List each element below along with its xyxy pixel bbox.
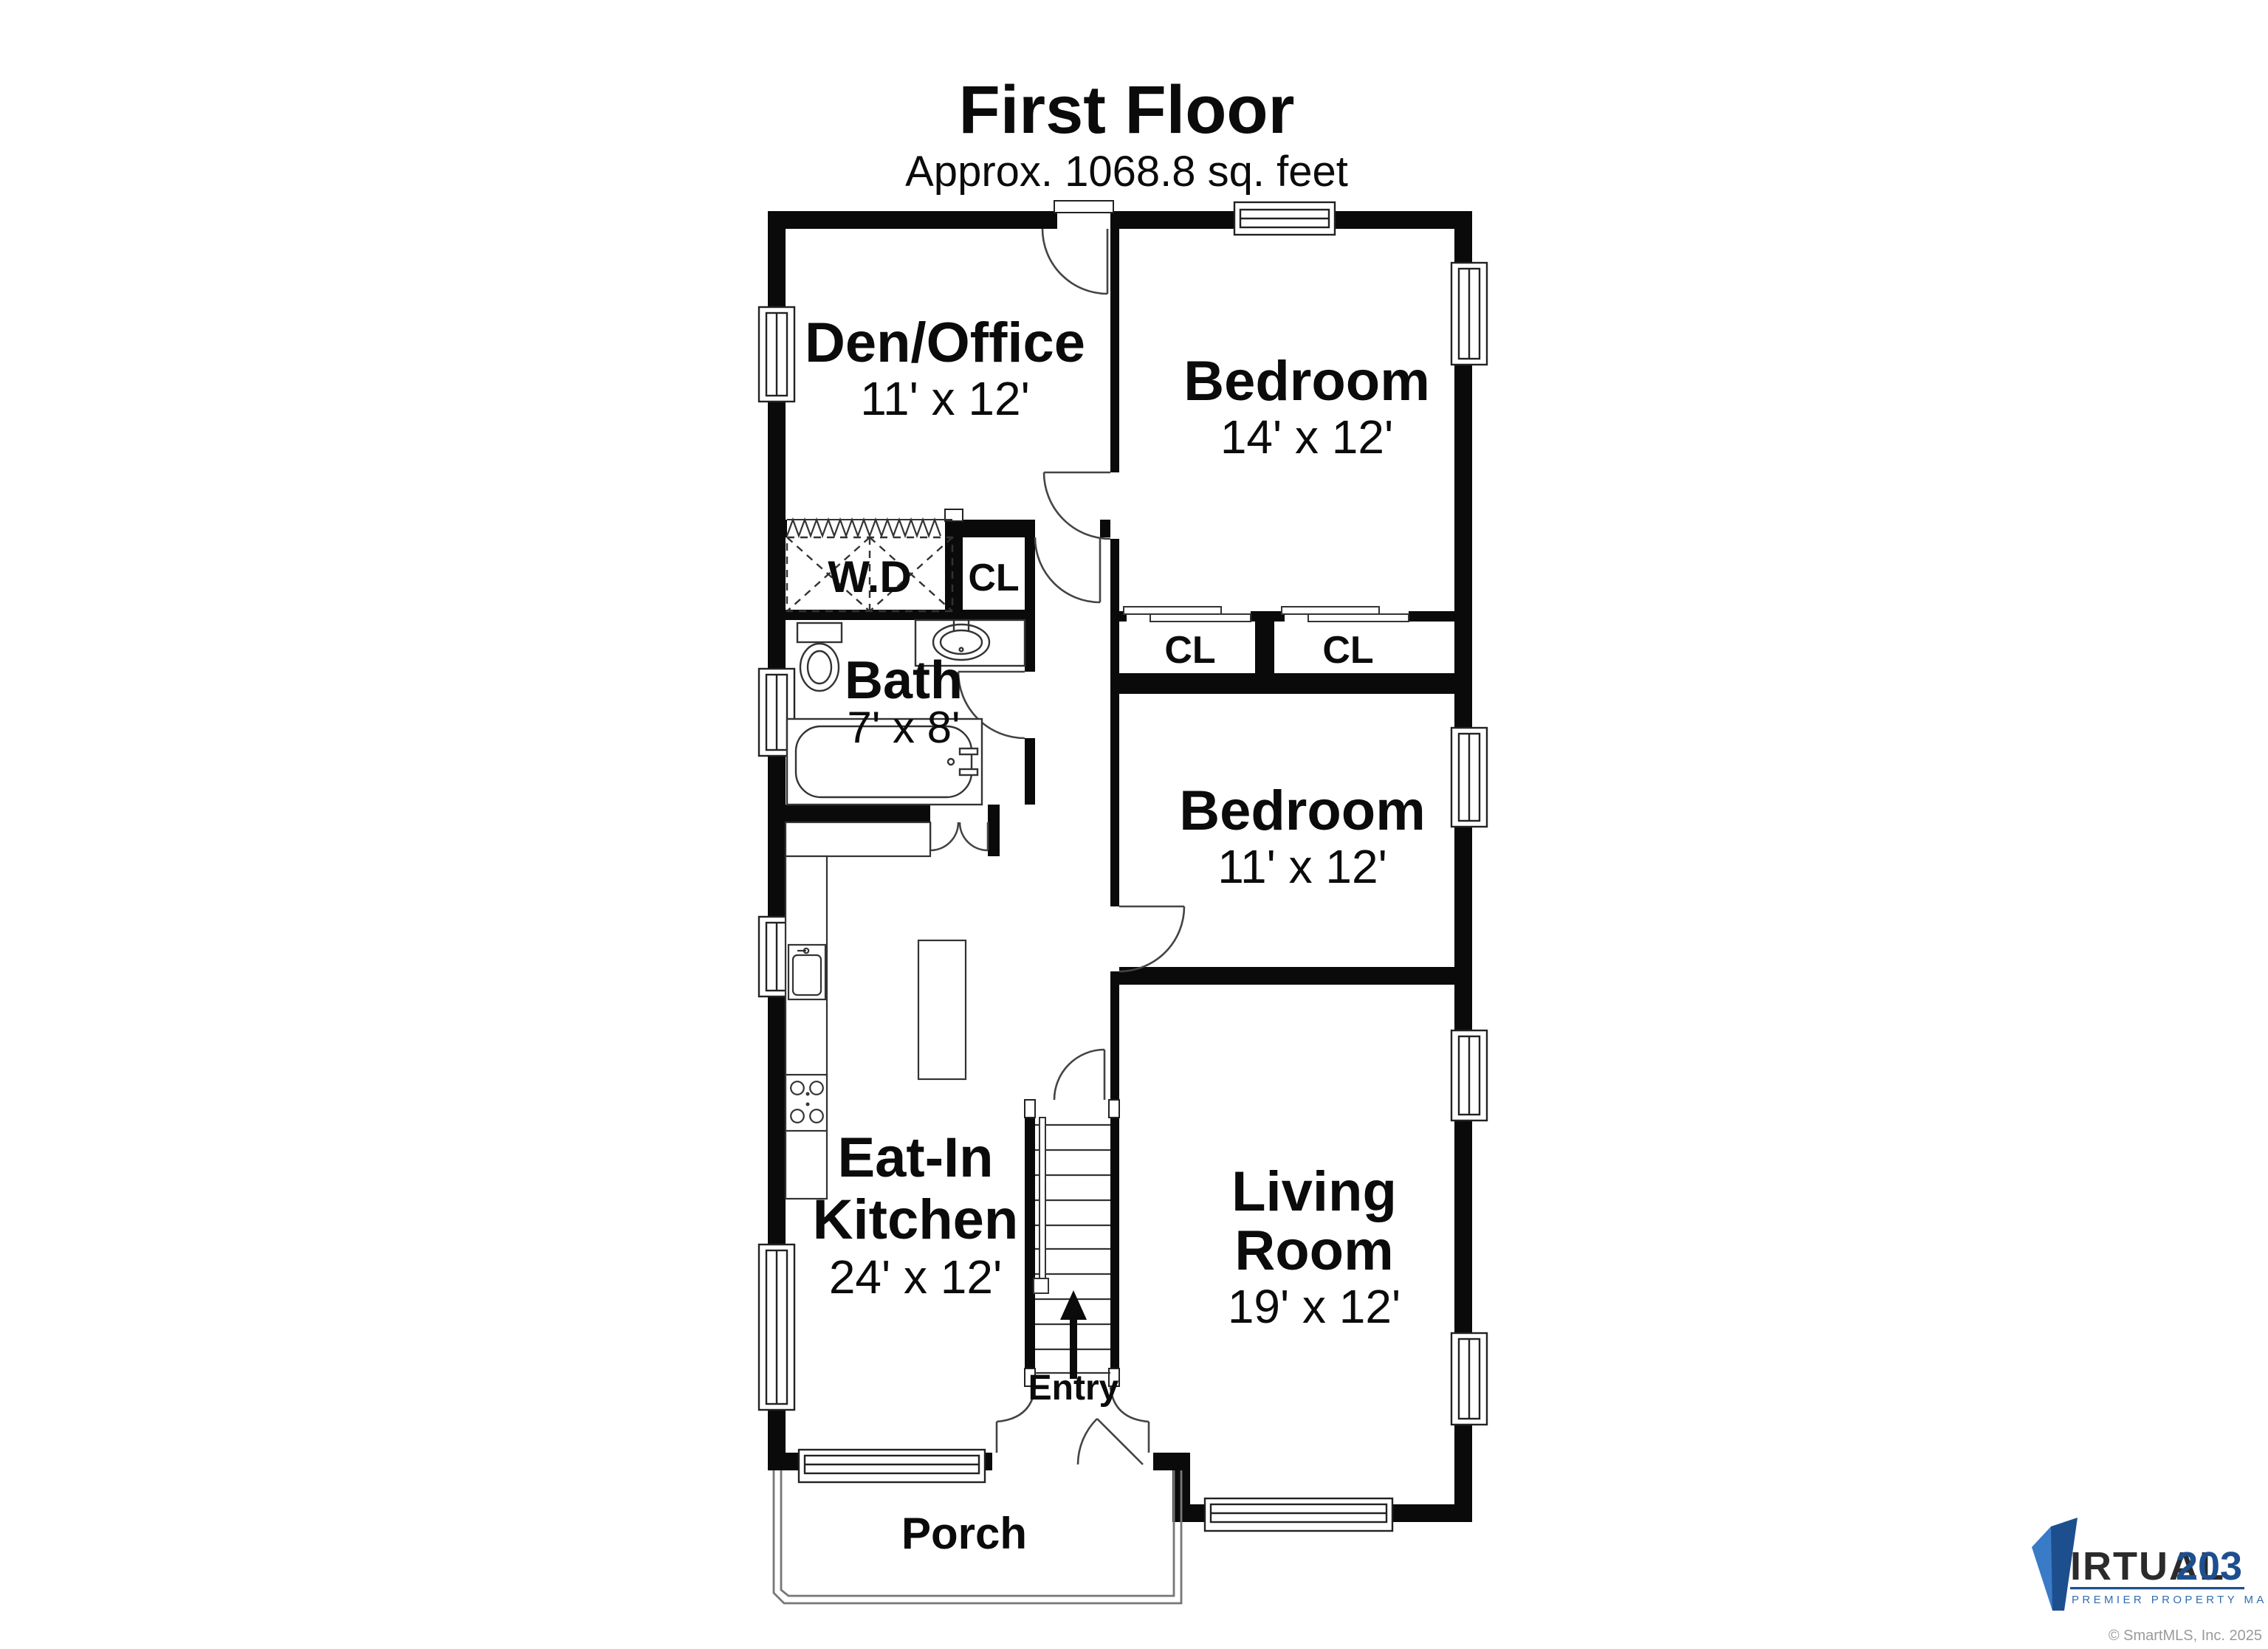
kitchen-island bbox=[918, 940, 966, 1079]
floor-plan-svg: First Floor Approx. 1068.8 sq. feet bbox=[0, 0, 2268, 1649]
room-dims-bedroom2: 11' x 12' bbox=[1217, 840, 1387, 893]
handrail bbox=[1039, 1118, 1045, 1283]
room-dims-kitchen: 24' x 12' bbox=[829, 1250, 1002, 1304]
room-label-living-1: Living bbox=[1231, 1160, 1397, 1223]
page-subtitle: Approx. 1068.8 sq. feet bbox=[905, 148, 1348, 196]
room-label-den: Den/Office bbox=[805, 311, 1085, 374]
page-title: First Floor bbox=[959, 72, 1295, 148]
room-label-bedroom1: Bedroom bbox=[1183, 350, 1430, 413]
kitchen-counter-left bbox=[786, 856, 827, 1199]
room-label-closet-hall: CL bbox=[968, 557, 1019, 599]
room-label-wd: W.D bbox=[828, 552, 911, 602]
room-label-porch: Porch bbox=[901, 1509, 1027, 1558]
toilet bbox=[797, 623, 842, 691]
copyright-text: © SmartMLS, Inc. 2025 bbox=[2109, 1628, 2262, 1644]
stove bbox=[786, 1075, 827, 1131]
logo-tagline: PREMIER PROPERTY MARKETING bbox=[2072, 1594, 2268, 1606]
virtual203-logo: IRTUAL 203 PREMIER PROPERTY MARKETING bbox=[2032, 1518, 2268, 1611]
floor-plan-page: First Floor Approx. 1068.8 sq. feet bbox=[0, 0, 2268, 1649]
room-label-closet-a: CL bbox=[1164, 629, 1215, 672]
room-label-entry: Entry bbox=[1028, 1369, 1119, 1408]
room-label-bath: Bath bbox=[845, 651, 963, 710]
room-dims-living: 19' x 12' bbox=[1228, 1280, 1401, 1333]
room-label-bedroom2: Bedroom bbox=[1179, 779, 1426, 842]
room-dims-den: 11' x 12' bbox=[860, 372, 1030, 425]
logo-number: 203 bbox=[2176, 1544, 2242, 1588]
room-label-kitchen-2: Kitchen bbox=[813, 1188, 1019, 1251]
kitchen-counter-top bbox=[786, 822, 930, 856]
room-label-living-2: Room bbox=[1234, 1219, 1393, 1282]
room-label-closet-b: CL bbox=[1322, 629, 1373, 672]
staircase bbox=[1034, 1118, 1110, 1379]
up-arrow-icon bbox=[1060, 1290, 1087, 1379]
room-dims-bath: 7' x 8' bbox=[848, 703, 961, 752]
kitchen-sink bbox=[788, 945, 825, 999]
room-label-kitchen-1: Eat-In bbox=[837, 1126, 993, 1189]
room-dims-bedroom1: 14' x 12' bbox=[1220, 410, 1393, 464]
